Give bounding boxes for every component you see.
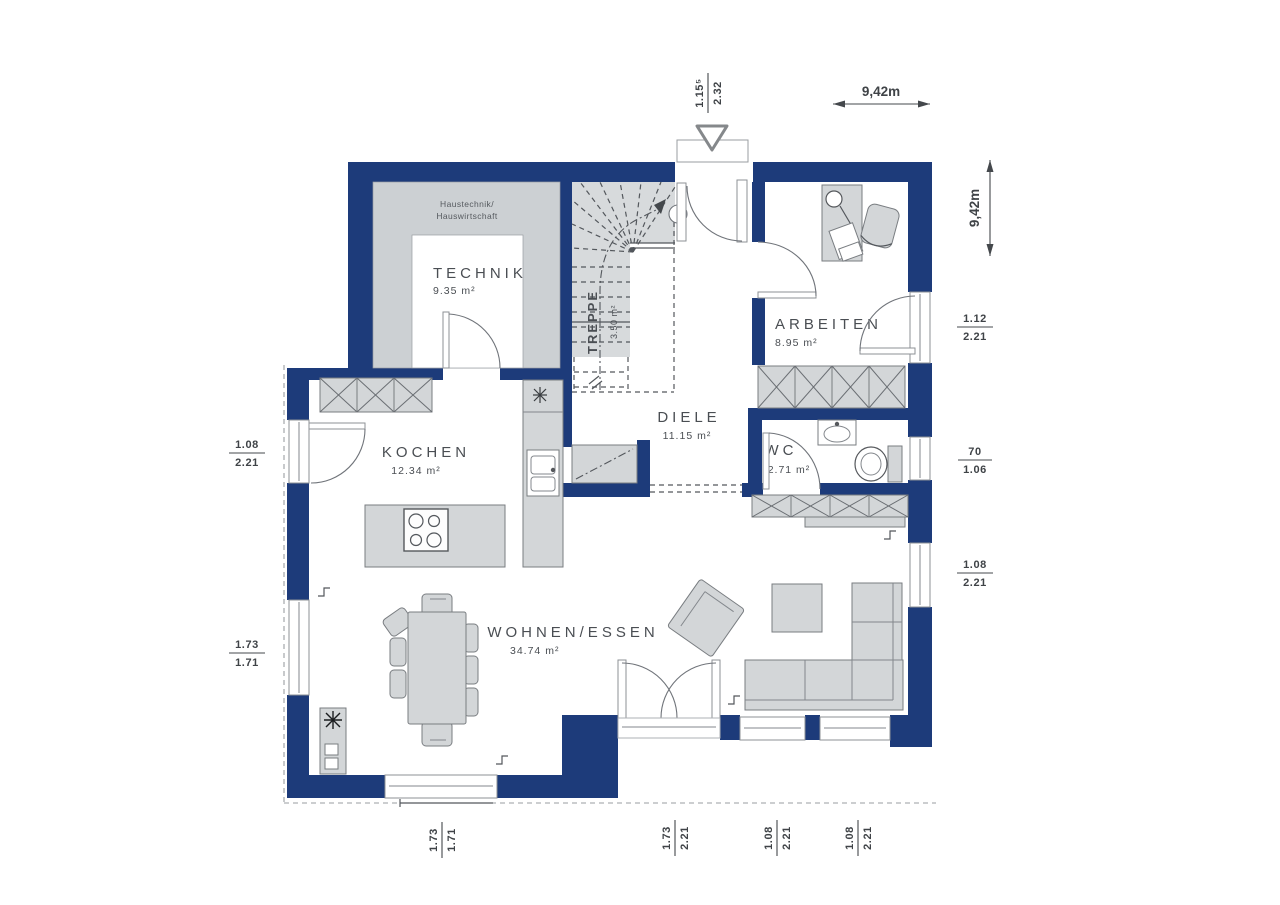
bottom-window-left (385, 775, 497, 798)
dim-right-wc: 70 1.06 (958, 446, 992, 476)
dim-den: 2.21 (862, 826, 874, 850)
dining-chair (422, 722, 452, 746)
room-wc: WC 2.71 m² (763, 420, 902, 489)
plant-icon (324, 711, 342, 729)
dim-bottom-window-1: 1.08 2.21 (763, 820, 793, 856)
wohnen-essen-label: WOHNEN/ESSEN (487, 624, 658, 641)
room-kochen: KOCHEN 12.34 m² (289, 378, 563, 567)
left-window (289, 600, 309, 695)
room-diele: DIELE 11.15 m² (572, 409, 742, 492)
room-arbeiten: ARBEITEN 8.95 m² (758, 185, 905, 408)
entrance-door (677, 180, 747, 242)
technik-area: 9.35 m² (433, 285, 476, 297)
dim-den: 1.71 (446, 828, 458, 852)
desk (822, 185, 864, 262)
dim-left-wohnen: 1.73 1.71 (229, 639, 265, 669)
dim-den: 2.21 (963, 577, 987, 589)
freezer-symbol-icon (533, 387, 547, 403)
floor-plan-canvas: Haustechnik/ Hauswirtschaft TECHNIK 9.35… (0, 0, 1280, 905)
kochen-label: KOCHEN (382, 444, 470, 461)
dim-num: 1.08 (235, 439, 259, 451)
arbeiten-wardrobe (758, 366, 905, 408)
office-chair (859, 203, 900, 250)
dim-num: 1.08 (763, 826, 775, 850)
wohnen-right-window (910, 543, 930, 607)
dining-table-set (382, 594, 478, 746)
dim-den: 1.71 (235, 657, 259, 669)
overall-width-label: 9,42m (862, 84, 900, 99)
kitchen-sink (527, 450, 559, 496)
lowboard (805, 517, 905, 527)
dim-num: 1.08 (963, 559, 987, 571)
corner-sofa (745, 583, 903, 710)
dim-bottom-door: 1.73 2.21 (661, 820, 691, 856)
dim-num: 1.08 (844, 826, 856, 850)
dim-overall-height: 9,42m (967, 160, 994, 256)
diele-area: 11.15 m² (663, 430, 712, 442)
desk-lamp-icon (826, 191, 842, 207)
dim-bottom-window-2: 1.08 2.21 (844, 820, 874, 856)
wc-area: 2.71 m² (768, 464, 811, 476)
dim-den: 2.21 (679, 826, 691, 850)
dim-num: 1.73 (428, 828, 440, 852)
sideboard-with-plant (320, 708, 346, 774)
arbeiten-area: 8.95 m² (775, 337, 818, 349)
kitchen-counter (523, 380, 563, 567)
dim-entry-num: 1.15⁵ (694, 78, 706, 108)
arbeiten-door (758, 242, 816, 298)
arbeiten-label: ARBEITEN (775, 316, 882, 333)
room-technik: Haustechnik/ Hauswirtschaft TECHNIK 9.35… (373, 182, 560, 368)
dining-chair (390, 638, 406, 666)
technik-label: TECHNIK (433, 265, 527, 282)
haustechnik-note-line1: Haustechnik/ (440, 199, 494, 209)
dim-entry-den: 2.32 (712, 81, 724, 105)
dim-right-arbeiten: 1.12 2.21 (957, 313, 993, 343)
toilet (855, 446, 902, 482)
dining-table (408, 612, 466, 724)
dim-num: 1.12 (963, 313, 987, 325)
wc-window (910, 437, 930, 480)
dim-den: 2.21 (963, 331, 987, 343)
dim-den: 2.21 (781, 826, 793, 850)
haustechnik-note-line2: Hauswirtschaft (436, 211, 498, 221)
entrance (675, 126, 753, 242)
technik-inner-room (412, 235, 523, 368)
dim-den: 1.06 (963, 464, 987, 476)
kochen-terrace-door (289, 420, 365, 483)
floor-plan: Haustechnik/ Hauswirtschaft TECHNIK 9.35… (0, 0, 1280, 905)
bottom-window-2 (820, 717, 890, 740)
diele-label: DIELE (657, 409, 720, 426)
treppe-area: 3.50 m² (609, 305, 619, 339)
coffee-table (772, 584, 822, 632)
floor-transition-dashed (650, 485, 742, 492)
staircase: TREPPE 3.50 m² (572, 182, 687, 392)
wohnen-essen-area: 34.74 m² (510, 645, 559, 657)
dim-entry: 1.15⁵ 2.32 (694, 73, 724, 113)
kochen-area: 12.34 m² (391, 465, 440, 477)
hall-sideboard (752, 495, 908, 527)
entrance-opening (675, 162, 753, 182)
cooktop (404, 509, 448, 551)
washbasin (818, 420, 856, 445)
dim-overall-width: 9,42m (833, 84, 930, 108)
kitchen-island (365, 505, 505, 567)
dim-left-kochen: 1.08 2.21 (229, 439, 265, 469)
dim-bottom-terrace-left: 1.73 1.71 (428, 822, 458, 858)
dim-den: 2.21 (235, 457, 259, 469)
dim-num: 70 (968, 446, 981, 458)
treppe-label: TREPPE (585, 290, 600, 354)
bottom-window-1 (740, 717, 805, 740)
dining-chair (390, 670, 406, 698)
french-double-door (618, 660, 720, 738)
overall-height-label: 9,42m (967, 189, 982, 227)
understair-storage (572, 445, 637, 483)
dim-right-wohnen: 1.08 2.21 (957, 559, 993, 589)
dim-num: 1.73 (235, 639, 259, 651)
kochen-wardrobe (320, 378, 432, 412)
dim-num: 1.73 (661, 826, 673, 850)
armchair (667, 579, 745, 657)
